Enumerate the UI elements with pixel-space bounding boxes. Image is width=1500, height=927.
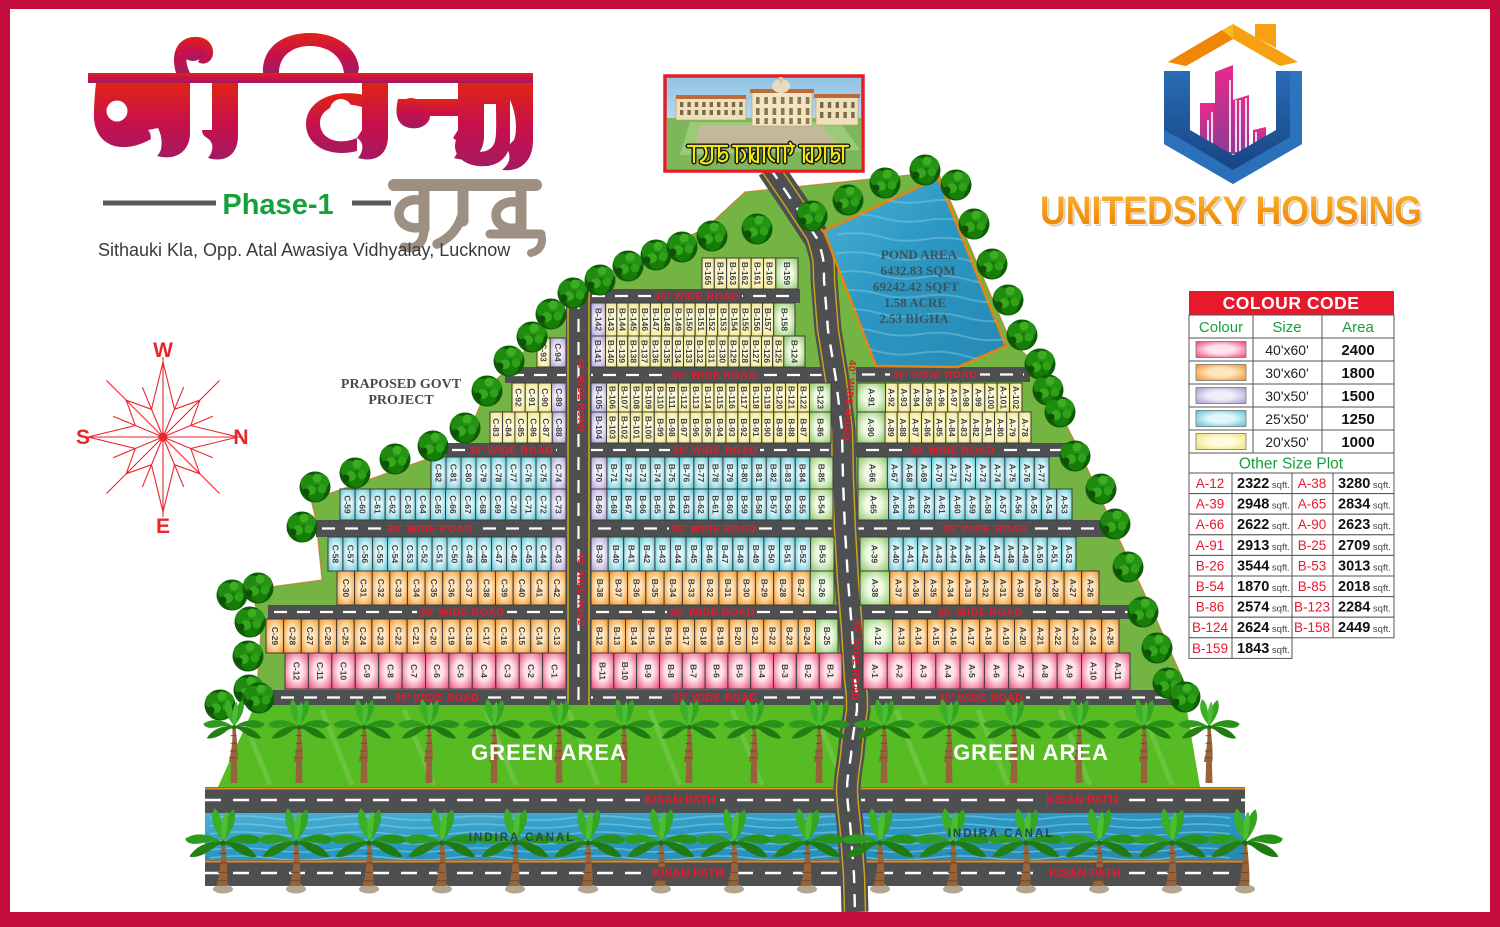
- svg-text:B-122: B-122: [799, 386, 809, 409]
- svg-text:B-62: B-62: [696, 495, 706, 514]
- svg-text:B-102: B-102: [619, 416, 629, 439]
- svg-text:B-121: B-121: [787, 386, 797, 409]
- svg-text:B-103: B-103: [608, 416, 618, 439]
- svg-text:A-65: A-65: [868, 495, 878, 514]
- svg-text:B-107: B-107: [619, 386, 629, 409]
- svg-text:C-42: C-42: [552, 579, 562, 598]
- svg-text:A-9: A-9: [1064, 664, 1074, 678]
- svg-text:W: W: [153, 339, 173, 362]
- svg-text:B-39: B-39: [595, 545, 605, 564]
- svg-text:B-22: B-22: [767, 627, 777, 646]
- svg-text:30'x50': 30'x50': [1265, 388, 1309, 404]
- svg-text:A-53: A-53: [1059, 495, 1069, 514]
- svg-text:6432.83 SQM: 6432.83 SQM: [880, 263, 955, 278]
- svg-text:B-75: B-75: [667, 464, 677, 483]
- svg-text:B-86: B-86: [1196, 600, 1225, 615]
- svg-text:B-17: B-17: [681, 627, 691, 646]
- svg-text:B-79: B-79: [725, 464, 735, 483]
- svg-text:B-23: B-23: [785, 627, 795, 646]
- svg-text:A-75: A-75: [1007, 464, 1017, 483]
- svg-text:B-118: B-118: [751, 386, 761, 409]
- svg-text:B-31: B-31: [723, 579, 733, 598]
- svg-text:A-64: A-64: [891, 495, 901, 514]
- svg-text:C-49: C-49: [464, 545, 474, 564]
- svg-text:A-76: A-76: [1022, 464, 1032, 483]
- svg-text:A-52: A-52: [1064, 545, 1074, 564]
- svg-text:C-85: C-85: [516, 418, 526, 437]
- svg-text:B-137: B-137: [640, 340, 650, 363]
- svg-text:B-58: B-58: [754, 495, 764, 514]
- svg-text:C-59: C-59: [343, 495, 353, 514]
- svg-text:A-12: A-12: [873, 627, 883, 646]
- svg-text:A-22: A-22: [1053, 627, 1063, 646]
- svg-text:B-33: B-33: [687, 579, 697, 598]
- svg-text:B-44: B-44: [673, 545, 683, 564]
- svg-text:C-1: C-1: [549, 664, 559, 678]
- svg-text:A-4: A-4: [943, 664, 953, 678]
- svg-text:30' WIDE ROAD: 30' WIDE ROAD: [910, 445, 995, 457]
- svg-text:C-52: C-52: [420, 545, 430, 564]
- svg-text:B-73: B-73: [638, 464, 648, 483]
- svg-text:20'x50': 20'x50': [1265, 434, 1309, 450]
- svg-text:C-28: C-28: [288, 627, 298, 646]
- svg-text:C-33: C-33: [394, 579, 404, 598]
- svg-text:B-55: B-55: [798, 495, 808, 514]
- svg-text:C-69: C-69: [493, 495, 503, 514]
- svg-text:B-117: B-117: [739, 386, 749, 409]
- svg-text:Size: Size: [1272, 319, 1301, 336]
- svg-text:A-29: A-29: [1033, 579, 1043, 598]
- svg-text:INDIRA CANAL: INDIRA CANAL: [948, 828, 1055, 840]
- svg-text:A-2: A-2: [894, 664, 904, 678]
- svg-text:B-85: B-85: [1298, 579, 1327, 594]
- svg-text:B-40: B-40: [611, 545, 621, 564]
- svg-text:A-90: A-90: [1298, 517, 1327, 532]
- svg-text:A-68: A-68: [904, 464, 914, 483]
- svg-text:E: E: [156, 515, 170, 538]
- svg-text:A-87: A-87: [910, 418, 920, 437]
- svg-text:C-37: C-37: [464, 579, 474, 598]
- svg-text:A-23: A-23: [1071, 627, 1081, 646]
- svg-text:B-145: B-145: [629, 308, 639, 331]
- svg-text:A-69: A-69: [919, 464, 929, 483]
- svg-text:B-159: B-159: [1192, 641, 1228, 656]
- svg-text:A-81: A-81: [983, 418, 993, 437]
- svg-text:C-58: C-58: [330, 545, 340, 564]
- svg-text:A-32: A-32: [981, 579, 991, 598]
- svg-text:C-77: C-77: [509, 464, 519, 483]
- svg-text:B-97: B-97: [679, 418, 689, 437]
- svg-text:C-66: C-66: [448, 495, 458, 514]
- svg-text:C-2: C-2: [526, 664, 536, 678]
- svg-text:A-10: A-10: [1089, 662, 1099, 681]
- svg-text:40' WIDE ROAD: 40' WIDE ROAD: [576, 358, 586, 432]
- svg-text:C-55: C-55: [375, 545, 385, 564]
- svg-text:1250: 1250: [1341, 411, 1374, 428]
- svg-text:A-99: A-99: [974, 388, 984, 407]
- svg-text:2.53 BIGHA: 2.53 BIGHA: [879, 311, 949, 326]
- svg-text:B-144: B-144: [617, 308, 627, 331]
- svg-text:GREEN AREA: GREEN AREA: [953, 740, 1109, 765]
- svg-text:A-8: A-8: [1040, 664, 1050, 678]
- svg-text:B-11: B-11: [597, 662, 607, 680]
- svg-text:30' WIDE ROAD: 30' WIDE ROAD: [673, 692, 758, 704]
- svg-text:C-80: C-80: [464, 464, 474, 483]
- svg-text:C-56: C-56: [360, 545, 370, 564]
- svg-text:UNITEDSKY HOUSING: UNITEDSKY HOUSING: [1040, 189, 1422, 233]
- svg-text:B-161: B-161: [752, 262, 762, 285]
- svg-text:B-155: B-155: [741, 308, 751, 331]
- svg-text:A-44: A-44: [949, 545, 959, 564]
- svg-text:A-35: A-35: [928, 579, 938, 598]
- svg-text:A-27: A-27: [1068, 579, 1078, 598]
- svg-text:A-55: A-55: [1029, 495, 1039, 514]
- svg-text:B-151: B-151: [696, 308, 706, 331]
- svg-text:KISAN PATH: KISAN PATH: [652, 866, 724, 880]
- svg-text:A-54: A-54: [1044, 495, 1054, 514]
- svg-text:B-127: B-127: [751, 340, 761, 363]
- svg-text:B-124: B-124: [1192, 620, 1229, 635]
- svg-text:A-20: A-20: [1018, 627, 1028, 646]
- svg-text:B-51: B-51: [782, 545, 792, 564]
- svg-text:C-38: C-38: [482, 579, 492, 598]
- svg-text:A-13: A-13: [896, 627, 906, 646]
- svg-text:B-76: B-76: [682, 464, 692, 483]
- svg-text:A-38: A-38: [870, 579, 880, 598]
- svg-text:S: S: [76, 426, 90, 449]
- svg-text:A-18: A-18: [983, 627, 993, 646]
- svg-text:30' WIDE ROAD: 30' WIDE ROAD: [672, 370, 757, 382]
- svg-text:B-28: B-28: [778, 579, 788, 598]
- svg-text:B-19: B-19: [716, 627, 726, 646]
- svg-text:A-94: A-94: [912, 388, 922, 407]
- svg-text:C-43: C-43: [554, 545, 564, 564]
- svg-text:B-91: B-91: [751, 418, 761, 437]
- svg-text:B-34: B-34: [668, 579, 678, 598]
- svg-text:C-39: C-39: [499, 579, 509, 598]
- svg-text:B-140: B-140: [606, 340, 616, 363]
- svg-text:A-38: A-38: [1298, 476, 1327, 491]
- svg-text:B-70: B-70: [594, 464, 604, 483]
- svg-text:40'x60': 40'x60': [1265, 342, 1309, 358]
- svg-text:A-1: A-1: [870, 664, 880, 678]
- svg-text:C-84: C-84: [504, 418, 514, 437]
- svg-text:A-26: A-26: [1085, 579, 1095, 598]
- svg-text:B-139: B-139: [617, 340, 627, 363]
- svg-text:A-102: A-102: [1011, 386, 1021, 409]
- svg-text:C-35: C-35: [429, 579, 439, 598]
- svg-text:B-13: B-13: [612, 627, 622, 646]
- svg-text:A-77: A-77: [1037, 464, 1047, 483]
- svg-text:B-54: B-54: [816, 495, 826, 514]
- svg-text:B-15: B-15: [647, 627, 657, 646]
- svg-text:C-81: C-81: [449, 464, 459, 483]
- svg-text:30' WIDE ROAD: 30' WIDE ROAD: [420, 607, 505, 619]
- svg-text:B-164: B-164: [716, 262, 726, 285]
- svg-text:B-69: B-69: [594, 495, 604, 514]
- svg-text:B-154: B-154: [730, 308, 740, 331]
- svg-text:A-47: A-47: [992, 545, 1002, 564]
- svg-text:C-70: C-70: [508, 495, 518, 514]
- svg-text:Other Size Plot: Other Size Plot: [1239, 456, 1344, 473]
- svg-text:A-39: A-39: [1196, 497, 1225, 512]
- svg-text:Colour: Colour: [1199, 319, 1243, 336]
- svg-text:C-64: C-64: [418, 495, 428, 514]
- svg-text:B-61: B-61: [711, 495, 721, 514]
- svg-text:B-53: B-53: [1298, 558, 1327, 573]
- svg-text:C-23: C-23: [376, 627, 386, 646]
- svg-text:N: N: [233, 426, 248, 449]
- svg-text:C-72: C-72: [538, 495, 548, 514]
- svg-text:B-60: B-60: [725, 495, 735, 514]
- svg-text:C-90: C-90: [540, 388, 550, 407]
- svg-text:B-162: B-162: [740, 262, 750, 285]
- svg-text:B-65: B-65: [653, 495, 663, 514]
- svg-text:B-88: B-88: [787, 418, 797, 437]
- svg-text:A-17: A-17: [966, 627, 976, 646]
- svg-text:B-159: B-159: [782, 262, 792, 285]
- svg-text:B-106: B-106: [608, 386, 618, 409]
- svg-text:B-147: B-147: [651, 308, 661, 331]
- svg-text:C-5: C-5: [456, 664, 466, 678]
- svg-text:B-165: B-165: [703, 262, 713, 285]
- svg-text:C-25: C-25: [340, 627, 350, 646]
- svg-text:B-35: B-35: [650, 579, 660, 598]
- svg-text:30' WIDE ROAD: 30' WIDE ROAD: [469, 445, 554, 457]
- svg-text:B-32: B-32: [705, 579, 715, 598]
- svg-text:B-131: B-131: [706, 340, 716, 363]
- svg-text:A-82: A-82: [971, 418, 981, 437]
- svg-text:C-65: C-65: [433, 495, 443, 514]
- svg-text:C-3: C-3: [503, 664, 513, 678]
- svg-text:B-123: B-123: [1294, 600, 1330, 615]
- svg-text:B-157: B-157: [763, 308, 773, 331]
- svg-text:A-41: A-41: [905, 545, 915, 564]
- svg-text:B-20: B-20: [733, 627, 743, 646]
- svg-text:B-47: B-47: [720, 545, 730, 564]
- svg-text:B-125: B-125: [773, 340, 783, 363]
- svg-text:A-97: A-97: [949, 388, 959, 407]
- svg-text:C-46: C-46: [509, 545, 519, 564]
- svg-text:A-85: A-85: [935, 418, 945, 437]
- svg-text:A-48: A-48: [1006, 545, 1016, 564]
- svg-text:B-14: B-14: [629, 627, 639, 646]
- svg-text:B-81: B-81: [754, 464, 764, 483]
- svg-text:B-92: B-92: [739, 418, 749, 437]
- svg-text:B-112: B-112: [679, 386, 689, 409]
- svg-text:B-110: B-110: [655, 386, 665, 409]
- svg-text:A-89: A-89: [886, 418, 896, 437]
- svg-text:A-42: A-42: [920, 545, 930, 564]
- svg-text:B-66: B-66: [638, 495, 648, 514]
- svg-text:C-73: C-73: [554, 495, 564, 514]
- svg-text:C-24: C-24: [358, 627, 368, 646]
- svg-text:B-74: B-74: [653, 464, 663, 483]
- svg-text:B-63: B-63: [682, 495, 692, 514]
- svg-text:C-83: C-83: [491, 418, 501, 437]
- svg-text:B-130: B-130: [718, 340, 728, 363]
- svg-text:A-79: A-79: [1008, 418, 1018, 437]
- svg-text:C-7: C-7: [409, 664, 419, 678]
- svg-text:A-62: A-62: [922, 495, 932, 514]
- svg-text:A-61: A-61: [937, 495, 947, 514]
- svg-text:B-153: B-153: [718, 308, 728, 331]
- svg-text:B-116: B-116: [727, 386, 737, 409]
- svg-text:A-63: A-63: [907, 495, 917, 514]
- svg-text:B-6: B-6: [712, 664, 722, 678]
- svg-text:C-74: C-74: [554, 464, 564, 483]
- svg-text:B-1: B-1: [826, 664, 836, 678]
- svg-text:A-80: A-80: [996, 418, 1006, 437]
- svg-text:B-99: B-99: [655, 418, 665, 437]
- svg-text:B-133: B-133: [684, 340, 694, 363]
- svg-text:B-105: B-105: [594, 386, 604, 409]
- svg-text:A-71: A-71: [949, 464, 959, 483]
- svg-text:30'x60': 30'x60': [1265, 365, 1309, 381]
- svg-text:B-42: B-42: [642, 545, 652, 564]
- svg-text:B-52: B-52: [798, 545, 808, 564]
- svg-text:B-96: B-96: [691, 418, 701, 437]
- svg-text:B-158: B-158: [1294, 620, 1330, 635]
- svg-text:B-29: B-29: [760, 579, 770, 598]
- svg-text:B-150: B-150: [685, 308, 695, 331]
- svg-text:C-30: C-30: [341, 579, 351, 598]
- svg-text:C-62: C-62: [388, 495, 398, 514]
- svg-text:B-9: B-9: [643, 664, 653, 678]
- svg-text:PROJECT: PROJECT: [368, 393, 434, 408]
- svg-text:A-66: A-66: [868, 464, 878, 483]
- svg-text:A-95: A-95: [924, 388, 934, 407]
- svg-text:B-50: B-50: [767, 545, 777, 564]
- svg-text:B-132: B-132: [695, 340, 705, 363]
- svg-text:B-100: B-100: [643, 416, 653, 439]
- svg-text:B-113: B-113: [691, 386, 701, 409]
- svg-text:A-57: A-57: [998, 495, 1008, 514]
- svg-text:A-24: A-24: [1088, 627, 1098, 646]
- svg-text:B-83: B-83: [783, 464, 793, 483]
- svg-text:C-10: C-10: [339, 662, 349, 681]
- svg-text:B-146: B-146: [640, 308, 650, 331]
- svg-text:C-12: C-12: [292, 662, 302, 681]
- svg-text:C-92: C-92: [514, 388, 524, 407]
- svg-text:KISAN PATH: KISAN PATH: [644, 793, 716, 807]
- svg-text:B-108: B-108: [631, 386, 641, 409]
- svg-text:A-30: A-30: [1016, 579, 1026, 598]
- svg-text:A-83: A-83: [959, 418, 969, 437]
- svg-text:B-48: B-48: [736, 545, 746, 564]
- svg-text:B-10: B-10: [620, 662, 630, 681]
- svg-text:B-54: B-54: [1196, 579, 1225, 594]
- svg-text:C-13: C-13: [552, 627, 562, 646]
- svg-text:C-68: C-68: [478, 495, 488, 514]
- svg-text:C-29: C-29: [270, 627, 280, 646]
- svg-text:A-101: A-101: [998, 386, 1008, 409]
- svg-text:C-8: C-8: [385, 664, 395, 678]
- svg-text:A-92: A-92: [887, 388, 897, 407]
- svg-text:C-31: C-31: [358, 579, 368, 598]
- svg-text:1500: 1500: [1341, 388, 1374, 405]
- svg-text:B-143: B-143: [606, 308, 616, 331]
- svg-text:B-59: B-59: [740, 495, 750, 514]
- svg-text:C-44: C-44: [539, 545, 549, 564]
- svg-text:B-111: B-111: [667, 386, 677, 408]
- svg-text:A-65: A-65: [1298, 497, 1327, 512]
- svg-text:A-50: A-50: [1035, 545, 1045, 564]
- svg-text:A-19: A-19: [1001, 627, 1011, 646]
- svg-text:B-2: B-2: [803, 664, 813, 678]
- svg-text:A-34: A-34: [946, 579, 956, 598]
- svg-text:B-152: B-152: [707, 308, 717, 331]
- svg-text:C-54: C-54: [390, 545, 400, 564]
- svg-text:B-3: B-3: [780, 664, 790, 678]
- svg-text:C-19: C-19: [446, 627, 456, 646]
- svg-text:B-25: B-25: [822, 627, 832, 646]
- svg-text:B-95: B-95: [703, 418, 713, 437]
- svg-text:A-46: A-46: [977, 545, 987, 564]
- svg-text:B-38: B-38: [595, 579, 605, 598]
- svg-text:B-149: B-149: [673, 308, 683, 331]
- svg-text:B-67: B-67: [624, 495, 634, 514]
- svg-text:A-51: A-51: [1049, 545, 1059, 564]
- svg-text:C-63: C-63: [403, 495, 413, 514]
- svg-text:B-25: B-25: [1298, 538, 1327, 553]
- svg-text:B-115: B-115: [715, 386, 725, 409]
- svg-text:B-141: B-141: [593, 340, 603, 363]
- svg-text:B-80: B-80: [740, 464, 750, 483]
- svg-text:A-40: A-40: [891, 545, 901, 564]
- svg-text:B-68: B-68: [609, 495, 619, 514]
- svg-text:C-9: C-9: [362, 664, 372, 678]
- svg-text:C-45: C-45: [524, 545, 534, 564]
- svg-text:C-76: C-76: [524, 464, 534, 483]
- svg-text:C-78: C-78: [494, 464, 504, 483]
- svg-text:B-5: B-5: [734, 664, 744, 678]
- svg-text:A-98: A-98: [961, 388, 971, 407]
- svg-text:C-34: C-34: [411, 579, 421, 598]
- svg-text:C-17: C-17: [482, 627, 492, 646]
- svg-text:A-6: A-6: [992, 664, 1002, 678]
- svg-text:C-21: C-21: [411, 627, 421, 646]
- svg-text:A-49: A-49: [1021, 545, 1031, 564]
- svg-text:B-41: B-41: [627, 545, 637, 564]
- svg-text:B-119: B-119: [763, 386, 773, 409]
- svg-text:A-43: A-43: [934, 545, 944, 564]
- svg-text:C-88: C-88: [554, 418, 564, 437]
- svg-text:C-26: C-26: [323, 627, 333, 646]
- svg-text:40' WIDE ROAD: 40' WIDE ROAD: [576, 553, 586, 627]
- svg-text:A-70: A-70: [934, 464, 944, 483]
- svg-text:A-3: A-3: [919, 664, 929, 678]
- svg-text:B-37: B-37: [613, 579, 623, 598]
- svg-text:A-25: A-25: [1105, 627, 1115, 646]
- svg-text:B-138: B-138: [628, 340, 638, 363]
- svg-text:PRAPOSED GOVT: PRAPOSED GOVT: [341, 377, 462, 392]
- svg-text:KISAN PATH: KISAN PATH: [1046, 793, 1118, 807]
- svg-text:1800: 1800: [1341, 365, 1374, 382]
- svg-text:A-88: A-88: [898, 418, 908, 437]
- svg-text:C-50: C-50: [449, 545, 459, 564]
- svg-text:A-15: A-15: [931, 627, 941, 646]
- svg-text:B-87: B-87: [799, 418, 809, 437]
- svg-text:1000: 1000: [1341, 434, 1374, 451]
- svg-text:B-134: B-134: [673, 340, 683, 363]
- svg-text:B-49: B-49: [751, 545, 761, 564]
- svg-text:B-136: B-136: [651, 340, 661, 363]
- svg-text:A-66: A-66: [1196, 517, 1225, 532]
- svg-text:B-85: B-85: [816, 464, 826, 483]
- svg-text:A-78: A-78: [1020, 418, 1030, 437]
- svg-text:B-158: B-158: [779, 308, 789, 331]
